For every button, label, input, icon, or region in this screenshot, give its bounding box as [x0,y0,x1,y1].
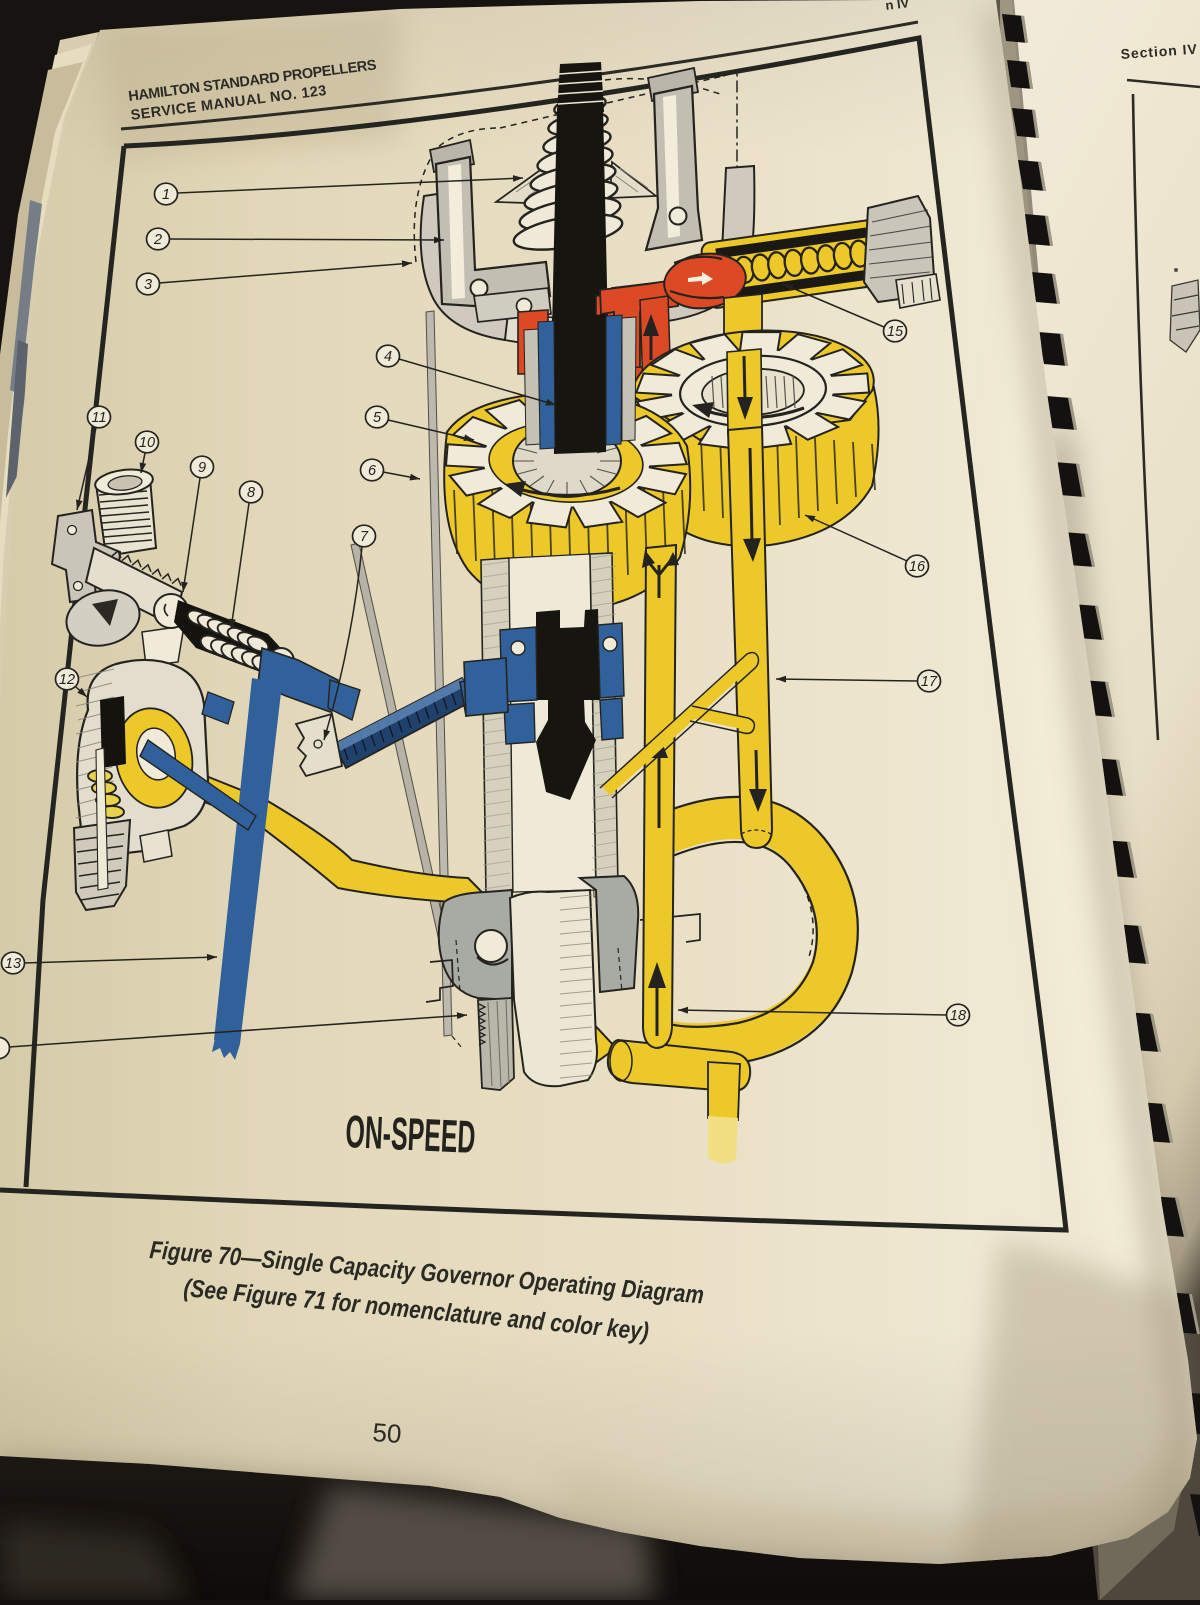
svg-text:7: 7 [360,529,369,545]
svg-text:15: 15 [887,324,904,340]
svg-text:3: 3 [144,277,152,293]
svg-text:11: 11 [91,410,106,426]
svg-text:4: 4 [384,349,392,365]
svg-text:18: 18 [950,1008,966,1024]
svg-text:2: 2 [153,232,162,248]
svg-text:9: 9 [198,460,206,476]
svg-text:8: 8 [247,485,255,501]
svg-text:1: 1 [162,187,170,203]
svg-text:17: 17 [921,674,938,690]
svg-text:5: 5 [373,410,382,426]
svg-text:ON-SPEED: ON-SPEED [344,1105,476,1163]
svg-text:50: 50 [372,1417,403,1449]
svg-text:16: 16 [909,559,926,575]
svg-text:10: 10 [139,435,155,451]
svg-text:6: 6 [368,463,377,479]
svg-text:12: 12 [59,672,75,688]
svg-text:13: 13 [5,956,21,972]
